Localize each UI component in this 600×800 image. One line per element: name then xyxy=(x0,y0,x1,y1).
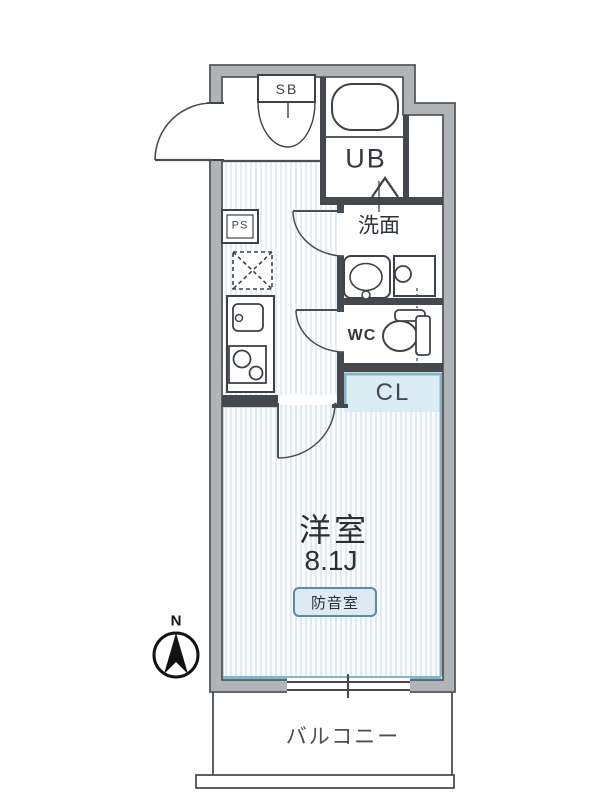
entrance-door xyxy=(155,103,213,160)
main-room-name-label: 洋室 xyxy=(299,514,369,546)
balcony-label: バルコニー xyxy=(286,727,401,748)
stove-burner-small xyxy=(250,367,263,380)
north-arrow-icon xyxy=(164,633,188,674)
entrance-opening xyxy=(207,103,224,160)
compass xyxy=(154,633,198,677)
stove-burner-large xyxy=(234,351,251,368)
washroom-door xyxy=(293,211,344,256)
main-room-size-label: 8.1J xyxy=(305,547,358,575)
plan-drawing xyxy=(0,0,600,800)
balcony-railing xyxy=(196,775,454,788)
washroom-label: 洗面 xyxy=(358,216,400,237)
pipe-space-label: PS xyxy=(232,221,249,232)
closet-label: CL xyxy=(376,381,411,405)
toilet-door xyxy=(296,310,344,352)
toilet-label: WC xyxy=(348,328,377,344)
kitchen-unit xyxy=(227,296,274,392)
compass-north-label: N xyxy=(171,614,182,629)
kitchen-faucet xyxy=(236,315,243,322)
soundproof-badge: 防音室 xyxy=(293,587,377,617)
main-room-door xyxy=(278,403,335,458)
unit-bath-label: UB xyxy=(345,146,387,173)
refrigerator-space xyxy=(233,252,272,289)
shoe-box-label: SB xyxy=(276,82,299,96)
washing-machine-pan xyxy=(394,256,435,296)
floor-plan: SB UB 洗面 WC CL PS 洋室 8.1J 防音室 バルコニー N xyxy=(0,0,600,800)
vanity-sink xyxy=(344,256,390,299)
